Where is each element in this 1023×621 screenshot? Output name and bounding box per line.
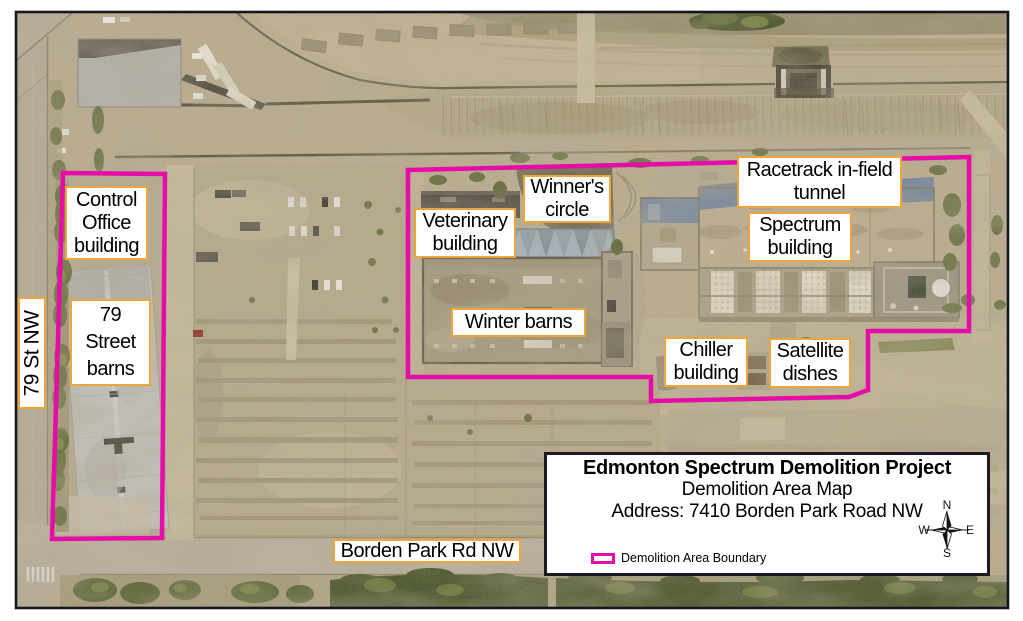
svg-text:W: W: [918, 523, 930, 537]
svg-text:N: N: [943, 498, 952, 512]
svg-text:E: E: [966, 523, 974, 537]
svg-text:S: S: [943, 546, 951, 560]
